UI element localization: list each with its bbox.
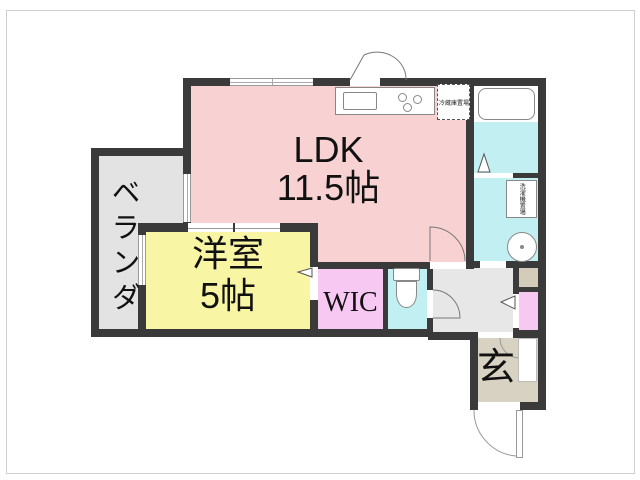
wall-bath-washroom <box>513 173 538 178</box>
washing-machine-space-label: 洗濯機置場 <box>517 183 526 216</box>
entrance-shoe-cabinet <box>518 338 537 382</box>
wall-veranda-left <box>91 156 99 337</box>
closet-door-opening <box>513 294 519 328</box>
western-room-label: 洋室 <box>146 236 310 272</box>
toilet-tank <box>393 268 420 281</box>
front-door-opening <box>478 402 520 410</box>
refrigerator-space-label: 冷蔵庫置場 <box>439 98 469 107</box>
bathroom-door-opening <box>474 173 513 178</box>
ldk-room-area: 11.5帖 <box>191 170 466 206</box>
front-door-leaf <box>516 410 523 458</box>
bathtub <box>478 88 535 120</box>
washing-machine-space: 洗濯機置場 <box>506 180 537 218</box>
shoe-storage-floor <box>519 267 538 287</box>
stove-burner-icon <box>403 103 412 112</box>
wall-closet-bottom <box>513 330 538 338</box>
western-veranda-window <box>138 235 146 285</box>
toilet-bowl <box>396 281 417 308</box>
wall-closet-divider <box>519 287 538 292</box>
ldk-western-sliding-door-1 <box>188 223 233 232</box>
entrance-closet-floor <box>519 292 538 330</box>
ldk-veranda-window <box>183 174 191 222</box>
wic-door-opening <box>310 267 318 300</box>
kitchen-sink <box>343 92 377 110</box>
western-room-area: 5帖 <box>146 278 310 314</box>
washroom-door-opening <box>480 261 506 268</box>
washbasin-drain <box>520 245 524 249</box>
hallway-floor <box>433 267 513 332</box>
kitchen-service-door-opening <box>350 78 380 86</box>
entrance-label: 玄 <box>472 349 520 387</box>
wall-rooms-bottom <box>146 329 433 337</box>
ldk-western-sliding-door-2 <box>235 223 280 232</box>
floorplan-canvas: 冷蔵庫置場 洗濯機置場 LDK 11.5帖 洋室 5帖 WIC 玄 ベランダ <box>0 0 640 480</box>
stove-burner-icon <box>398 93 407 102</box>
wall-veranda-top <box>91 148 183 156</box>
toilet-door-opening <box>427 290 433 318</box>
stove-burner-icon <box>413 95 422 104</box>
ldk-room-label: LDK <box>191 132 466 168</box>
veranda-label: ベランダ <box>103 162 137 332</box>
wall-right <box>538 78 546 410</box>
wall-wic-toilet <box>383 267 388 329</box>
ldk-door-opening <box>430 262 466 269</box>
refrigerator-space: 冷蔵庫置場 <box>437 84 470 120</box>
ldk-top-window <box>230 78 313 86</box>
wic-room-label: WIC <box>318 289 383 317</box>
